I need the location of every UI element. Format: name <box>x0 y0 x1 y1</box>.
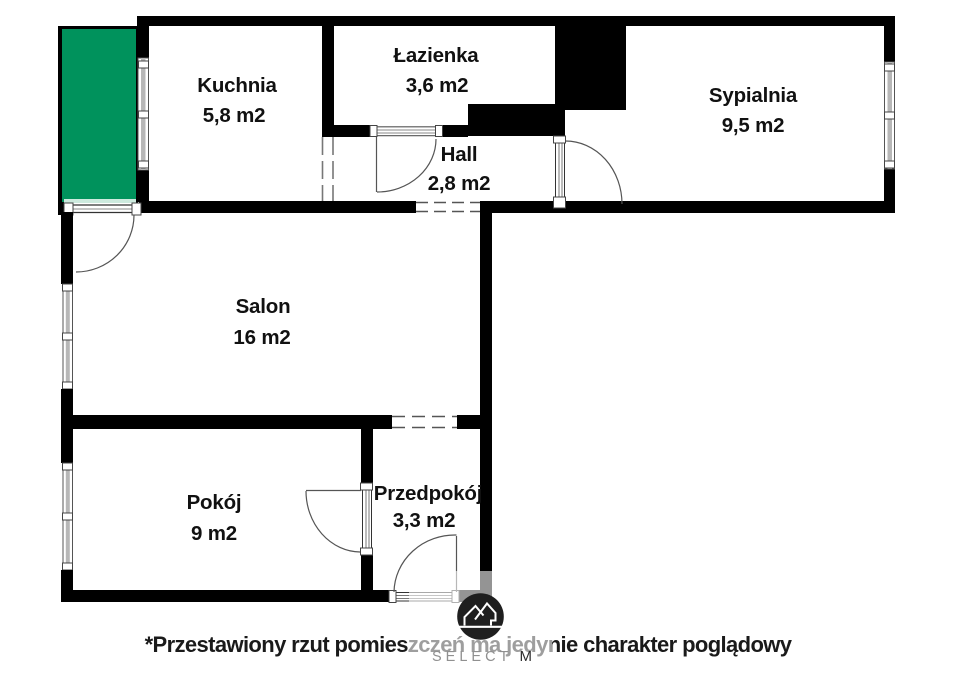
svg-text:Pokój: Pokój <box>187 491 242 514</box>
svg-text:3,6 m2: 3,6 m2 <box>406 74 469 97</box>
svg-text:SELECT: SELECT <box>432 649 512 665</box>
svg-text:9,5 m2: 9,5 m2 <box>722 114 785 137</box>
svg-text:9 m2: 9 m2 <box>191 522 237 545</box>
svg-text:3,3 m2: 3,3 m2 <box>393 509 456 532</box>
svg-text:M: M <box>520 648 533 665</box>
svg-text:Sypialnia: Sypialnia <box>709 84 798 107</box>
svg-text:Hall: Hall <box>441 143 478 166</box>
svg-text:Salon: Salon <box>236 295 291 318</box>
svg-text:2,8 m2: 2,8 m2 <box>428 172 491 195</box>
svg-text:Przedpokój: Przedpokój <box>374 482 483 505</box>
svg-text:16 m2: 16 m2 <box>233 326 290 349</box>
svg-text:5,8 m2: 5,8 m2 <box>203 104 266 127</box>
svg-text:Kuchnia: Kuchnia <box>197 74 277 97</box>
svg-text:Łazienka: Łazienka <box>394 44 480 67</box>
